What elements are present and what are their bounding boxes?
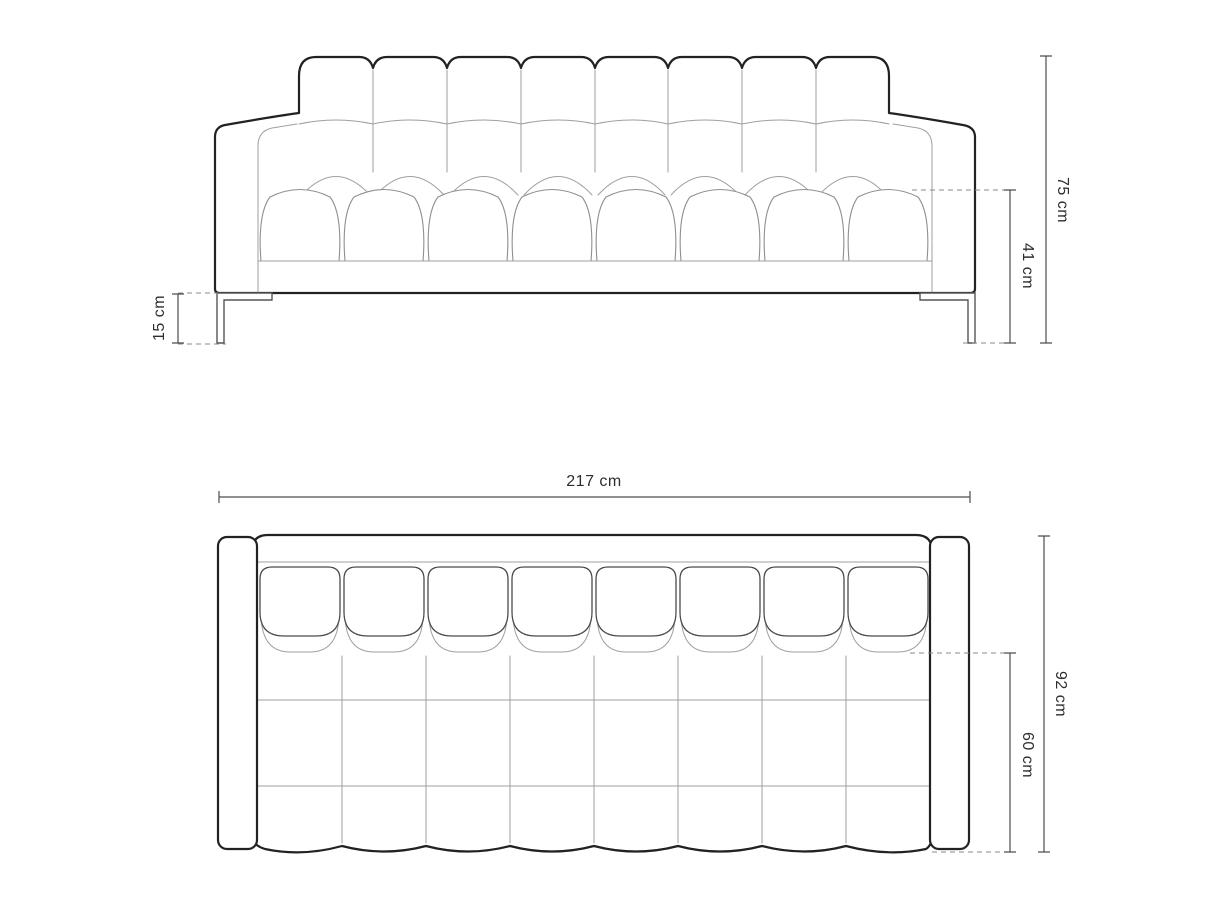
sofa-dimension-drawing: 75 cm 41 cm 15 cm 217 cm 92 cm 60 cm [0,0,1214,910]
seat-depth-label: 60 cm [1019,732,1036,778]
dimension-leg-height: 15 cm [151,293,226,344]
top-view [218,535,969,852]
dimension-overall-width: 217 cm [219,473,970,503]
front-view [215,57,975,343]
left-arm-plan [218,537,257,849]
right-arm-plan [930,537,969,849]
right-leg [920,293,975,343]
dimension-overall-height: 75 cm [1040,56,1071,343]
leg-height-label: 15 cm [151,295,168,341]
dimension-overall-depth: 92 cm [1038,536,1069,852]
technical-drawing-page: 75 cm 41 cm 15 cm 217 cm 92 cm 60 cm [0,0,1214,910]
overall-width-label: 217 cm [566,473,621,490]
left-leg [217,293,272,343]
seat-height-label: 41 cm [1019,243,1036,289]
overall-depth-label: 92 cm [1052,671,1069,717]
overall-height-label: 75 cm [1054,177,1071,223]
